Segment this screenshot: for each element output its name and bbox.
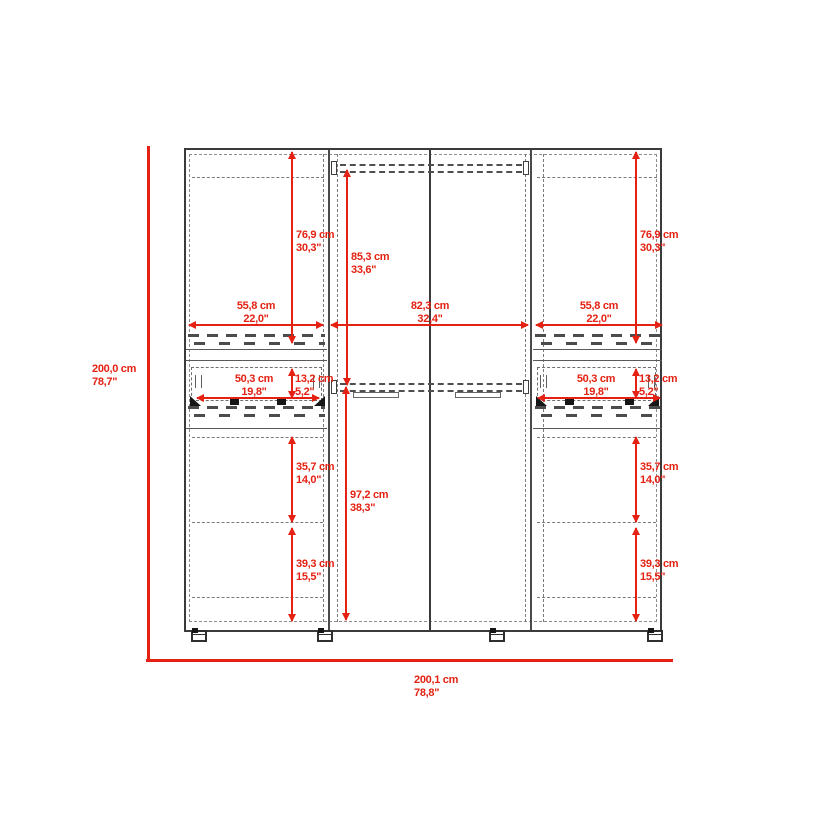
dim-value-in: 78,8" bbox=[414, 687, 458, 700]
rod-bracket bbox=[523, 380, 529, 394]
dim-label-right-section-width: 55,8 cm 22,0" bbox=[580, 300, 618, 326]
dim-value-in: 78,7" bbox=[92, 376, 136, 389]
top-shelf-right bbox=[537, 177, 657, 178]
edge-band bbox=[535, 333, 660, 347]
dim-label-right-door-height: 76,9 cm 30,3" bbox=[640, 229, 678, 255]
dim-label-right-mid-shelf: 35,7 cm 14,0" bbox=[640, 461, 678, 487]
dim-value-cm: 13,2 cm bbox=[295, 373, 333, 386]
dim-value-cm: 55,8 cm bbox=[237, 300, 275, 313]
hidden-edge bbox=[337, 154, 338, 622]
shelf-hidden bbox=[192, 437, 323, 438]
dim-label-center-lower-height: 97,2 cm 38,3" bbox=[350, 489, 388, 515]
foot bbox=[489, 630, 505, 642]
edge-band bbox=[188, 405, 325, 418]
dim-value-cm: 97,2 cm bbox=[350, 489, 388, 502]
dim-value-cm: 76,9 cm bbox=[296, 229, 334, 242]
edge-band bbox=[188, 333, 325, 347]
shelf-line bbox=[533, 428, 662, 429]
frame-rail bbox=[533, 349, 662, 361]
overall-height-extent-line bbox=[147, 146, 150, 662]
dim-left-door-height bbox=[291, 152, 293, 343]
dim-label-center-upper-height: 85,3 cm 33,6" bbox=[351, 251, 389, 277]
dim-value-cm: 35,7 cm bbox=[296, 461, 334, 474]
dim-label-left-drawer-width: 50,3 cm 19,8" bbox=[235, 373, 273, 399]
dim-label-left-drawer-height: 13,2 cm 5,2" bbox=[295, 373, 333, 399]
dim-left-bottom-shelf bbox=[291, 528, 293, 621]
shelf-line bbox=[186, 428, 327, 429]
dim-value-cm: 50,3 cm bbox=[235, 373, 273, 386]
shelf-hidden bbox=[537, 597, 656, 598]
dim-label-overall-width: 200,1 cm 78,8" bbox=[414, 674, 458, 700]
edge-band bbox=[535, 405, 660, 418]
rod-bracket bbox=[523, 161, 529, 175]
foot bbox=[191, 630, 207, 642]
dim-center-upper-height bbox=[346, 170, 348, 385]
divider-right bbox=[530, 150, 532, 630]
dim-label-right-drawer-width: 50,3 cm 19,8" bbox=[577, 373, 615, 399]
dim-label-left-mid-shelf: 35,7 cm 14,0" bbox=[296, 461, 334, 487]
dim-value-cm: 13,2 cm bbox=[639, 373, 677, 386]
dim-value-cm: 50,3 cm bbox=[577, 373, 615, 386]
dim-value-cm: 55,8 cm bbox=[580, 300, 618, 313]
dim-value-in: 22,0" bbox=[580, 313, 618, 326]
dim-value-cm: 82,3 cm bbox=[411, 300, 449, 313]
dim-value-in: 22,0" bbox=[237, 313, 275, 326]
dim-left-mid-shelf bbox=[291, 437, 293, 522]
dim-value-in: 15,5" bbox=[296, 571, 334, 584]
dim-value-in: 15,5" bbox=[640, 571, 678, 584]
dim-value-in: 30,3" bbox=[296, 242, 334, 255]
dim-value-in: 19,8" bbox=[577, 386, 615, 399]
dim-right-drawer-height bbox=[635, 369, 637, 398]
dim-value-cm: 85,3 cm bbox=[351, 251, 389, 264]
dim-value-in: 5,2" bbox=[295, 386, 333, 399]
dim-right-bottom-shelf bbox=[635, 528, 637, 621]
top-rod bbox=[340, 164, 522, 166]
foot bbox=[647, 630, 663, 642]
dim-value-in: 30,3" bbox=[640, 242, 678, 255]
middle-rod bbox=[340, 383, 522, 385]
dim-right-mid-shelf bbox=[635, 437, 637, 522]
dim-left-drawer-height bbox=[291, 369, 293, 398]
dim-label-left-bottom-shelf: 39,3 cm 15,5" bbox=[296, 558, 334, 584]
dim-value-cm: 200,0 cm bbox=[92, 363, 136, 376]
dim-label-right-bottom-shelf: 39,3 cm 15,5" bbox=[640, 558, 678, 584]
dim-value-in: 5,2" bbox=[639, 386, 677, 399]
dim-value-cm: 39,3 cm bbox=[640, 558, 678, 571]
top-shelf-left bbox=[192, 177, 324, 178]
rod-support bbox=[353, 392, 399, 398]
dim-label-center-section-width: 82,3 cm 32,4" bbox=[411, 300, 449, 326]
dim-value-in: 14,0" bbox=[296, 474, 334, 487]
frame-rail bbox=[186, 349, 327, 361]
dim-value-in: 14,0" bbox=[640, 474, 678, 487]
dim-value-cm: 200,1 cm bbox=[414, 674, 458, 687]
dim-center-lower-height bbox=[345, 387, 347, 620]
dim-value-cm: 39,3 cm bbox=[296, 558, 334, 571]
dim-right-door-height bbox=[635, 152, 637, 343]
foot bbox=[317, 630, 333, 642]
rod-bracket bbox=[331, 161, 337, 175]
overall-width-extent-line bbox=[146, 659, 673, 662]
drawer-slide-mark bbox=[540, 375, 547, 388]
shelf-hidden bbox=[192, 597, 323, 598]
shelf-hidden bbox=[192, 522, 323, 523]
dim-label-left-section-width: 55,8 cm 22,0" bbox=[237, 300, 275, 326]
dim-label-left-door-height: 76,9 cm 30,3" bbox=[296, 229, 334, 255]
dim-value-cm: 76,9 cm bbox=[640, 229, 678, 242]
dim-value-in: 19,8" bbox=[235, 386, 273, 399]
wardrobe-dimension-diagram: 200,0 cm 78,7" 200,1 cm 78,8" 55,8 cm 22… bbox=[0, 0, 840, 840]
dim-value-in: 38,3" bbox=[350, 502, 388, 515]
rod-support bbox=[455, 392, 501, 398]
dim-label-overall-height: 200,0 cm 78,7" bbox=[92, 363, 136, 389]
dim-value-in: 32,4" bbox=[411, 313, 449, 326]
dim-label-right-drawer-height: 13,2 cm 5,2" bbox=[639, 373, 677, 399]
drawer-slide-mark bbox=[195, 375, 202, 388]
top-rod bbox=[340, 171, 522, 173]
dim-value-in: 33,6" bbox=[351, 264, 389, 277]
dim-value-cm: 35,7 cm bbox=[640, 461, 678, 474]
